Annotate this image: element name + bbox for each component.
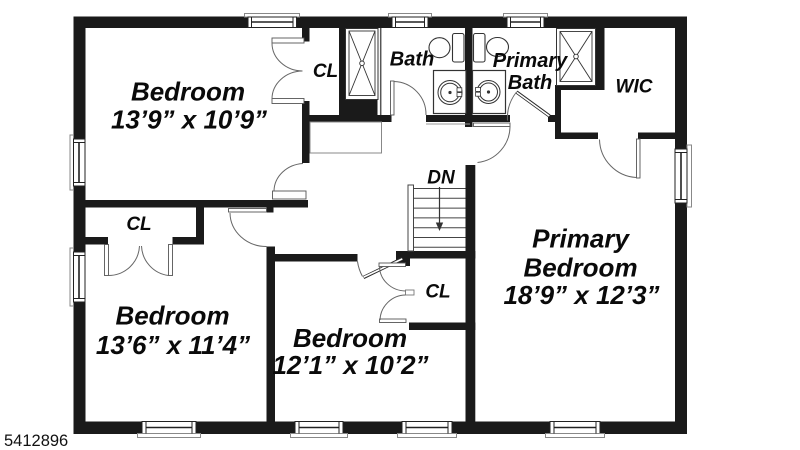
svg-text:Bath: Bath	[390, 49, 434, 71]
svg-text:Bedroom: Bedroom	[293, 323, 407, 353]
svg-text:Bedroom: Bedroom	[131, 76, 245, 106]
svg-text:CL: CL	[313, 61, 338, 82]
svg-text:CL: CL	[126, 214, 151, 235]
svg-text:Bedroom: Bedroom	[523, 252, 637, 282]
svg-text:CL: CL	[425, 281, 450, 302]
svg-text:12’1” x 10’2”: 12’1” x 10’2”	[272, 350, 428, 380]
svg-text:13’6” x 11’4”: 13’6” x 11’4”	[96, 330, 250, 360]
svg-text:WIC: WIC	[616, 76, 653, 97]
svg-text:DN: DN	[427, 168, 456, 189]
svg-text:5412896: 5412896	[4, 432, 68, 450]
svg-text:18’9” x 12’3”: 18’9” x 12’3”	[503, 280, 659, 310]
svg-text:Bedroom: Bedroom	[115, 301, 229, 331]
svg-text:Primary: Primary	[532, 224, 630, 254]
svg-text:Bath: Bath	[508, 72, 552, 94]
svg-text:13’9” x 10’9”: 13’9” x 10’9”	[111, 104, 267, 134]
svg-text:Primary: Primary	[493, 50, 568, 72]
